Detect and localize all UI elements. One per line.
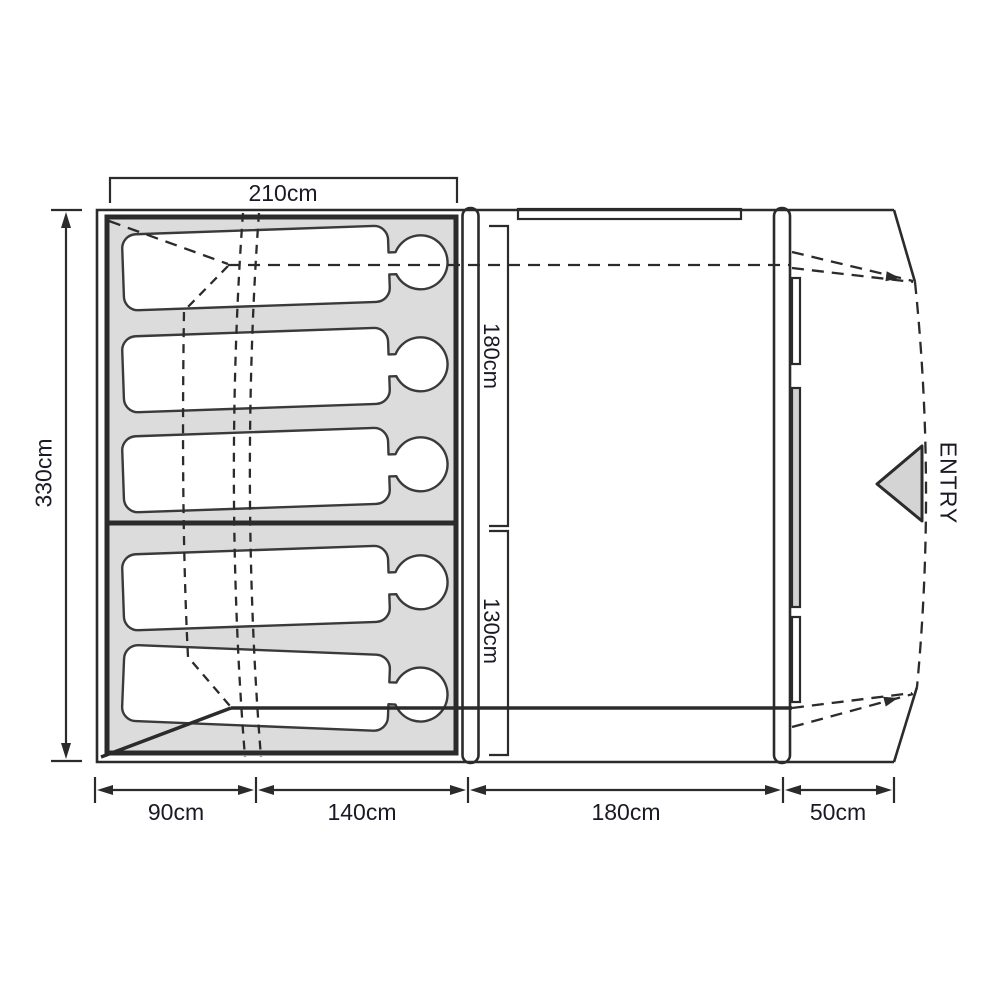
arrow-50-l	[785, 785, 801, 795]
door-panel-middle	[792, 388, 800, 607]
arrowhead-bottom	[883, 697, 898, 707]
divider-pole-left	[463, 208, 479, 763]
dashed-door-line-top-b	[792, 268, 913, 282]
door-panel-top	[792, 278, 800, 364]
arrow-140-r	[450, 785, 466, 795]
dim-label-bottom-3: 180cm	[591, 799, 660, 826]
front-pole	[774, 208, 790, 763]
tent-floor-plan: 210cm 330cm 180cm 130cm 90cm 140cm 180cm…	[0, 0, 1000, 1000]
porch-slant-top	[894, 210, 915, 282]
arrow-330-up	[61, 212, 71, 228]
dim-label-bottom-1: 90cm	[148, 799, 204, 826]
arrow-330-down	[61, 743, 71, 759]
arrow-140-l	[258, 785, 274, 795]
arrow-180-l	[470, 785, 486, 795]
dim-label-upper-room-depth: 180cm	[478, 323, 504, 389]
arrow-180-r	[765, 785, 781, 795]
door-panel-bottom	[792, 617, 800, 702]
arrow-90-r	[238, 785, 254, 795]
dim-label-bottom-2: 140cm	[327, 799, 396, 826]
dim-label-left-depth: 330cm	[31, 438, 58, 507]
structure-elements	[463, 208, 801, 763]
dim-label-lower-room-depth: 130cm	[478, 598, 504, 664]
entry-arrow-icon	[877, 446, 922, 521]
arrow-50-r	[876, 785, 892, 795]
arrow-90-l	[97, 785, 113, 795]
floorplan-drawing	[0, 0, 1000, 1000]
dim-label-top-width: 210cm	[248, 180, 317, 207]
dim-label-bottom-4: 50cm	[810, 799, 866, 826]
entry-label: ENTRY	[935, 442, 962, 525]
